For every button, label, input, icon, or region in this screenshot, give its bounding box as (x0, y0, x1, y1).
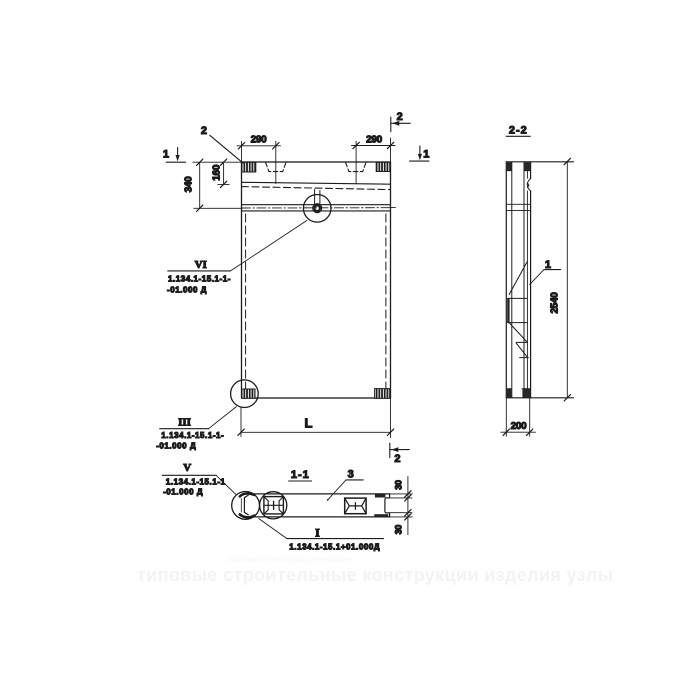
svg-text:1: 1 (545, 259, 551, 271)
svg-text:2540: 2540 (550, 292, 561, 314)
svg-text:1: 1 (423, 148, 429, 160)
svg-text:1.134.1-15.1-1-: 1.134.1-15.1-1- (168, 275, 231, 284)
svg-text:-01.000 Д: -01.000 Д (167, 286, 207, 295)
svg-text:290: 290 (366, 135, 383, 146)
svg-text:2: 2 (394, 453, 400, 465)
svg-text:1: 1 (163, 149, 169, 161)
svg-text:2: 2 (397, 111, 403, 123)
svg-text:типовые строительные конструкц: типовые строительные конструкции изделия… (137, 565, 613, 585)
svg-text:30: 30 (394, 525, 404, 535)
svg-text:340: 340 (183, 176, 194, 193)
svg-text:1.134.1-15.1-1: 1.134.1-15.1-1 (166, 477, 226, 486)
svg-text:3: 3 (348, 469, 354, 481)
svg-text:III: III (178, 417, 191, 429)
svg-text:1.134.1-15.1+01.000Д: 1.134.1-15.1+01.000Д (289, 543, 380, 552)
svg-text:нормативная документация: нормативная документация (228, 554, 353, 564)
svg-text:I: I (315, 526, 320, 540)
svg-text:2-2: 2-2 (509, 124, 528, 136)
svg-text:VI: VI (195, 259, 207, 271)
svg-text:290: 290 (251, 134, 268, 145)
svg-text:1-1: 1-1 (291, 469, 310, 481)
svg-text:1.134.1-15.1-1-: 1.134.1-15.1-1- (161, 431, 224, 440)
svg-text:-01.000 Д: -01.000 Д (156, 442, 196, 451)
svg-text:30: 30 (393, 480, 403, 490)
svg-text:160: 160 (212, 164, 223, 181)
svg-text:L: L (304, 416, 312, 431)
svg-text:-01.000 Д: -01.000 Д (163, 488, 203, 497)
svg-text:V: V (183, 462, 191, 474)
svg-text:2: 2 (201, 125, 207, 137)
svg-text:200: 200 (511, 421, 528, 432)
